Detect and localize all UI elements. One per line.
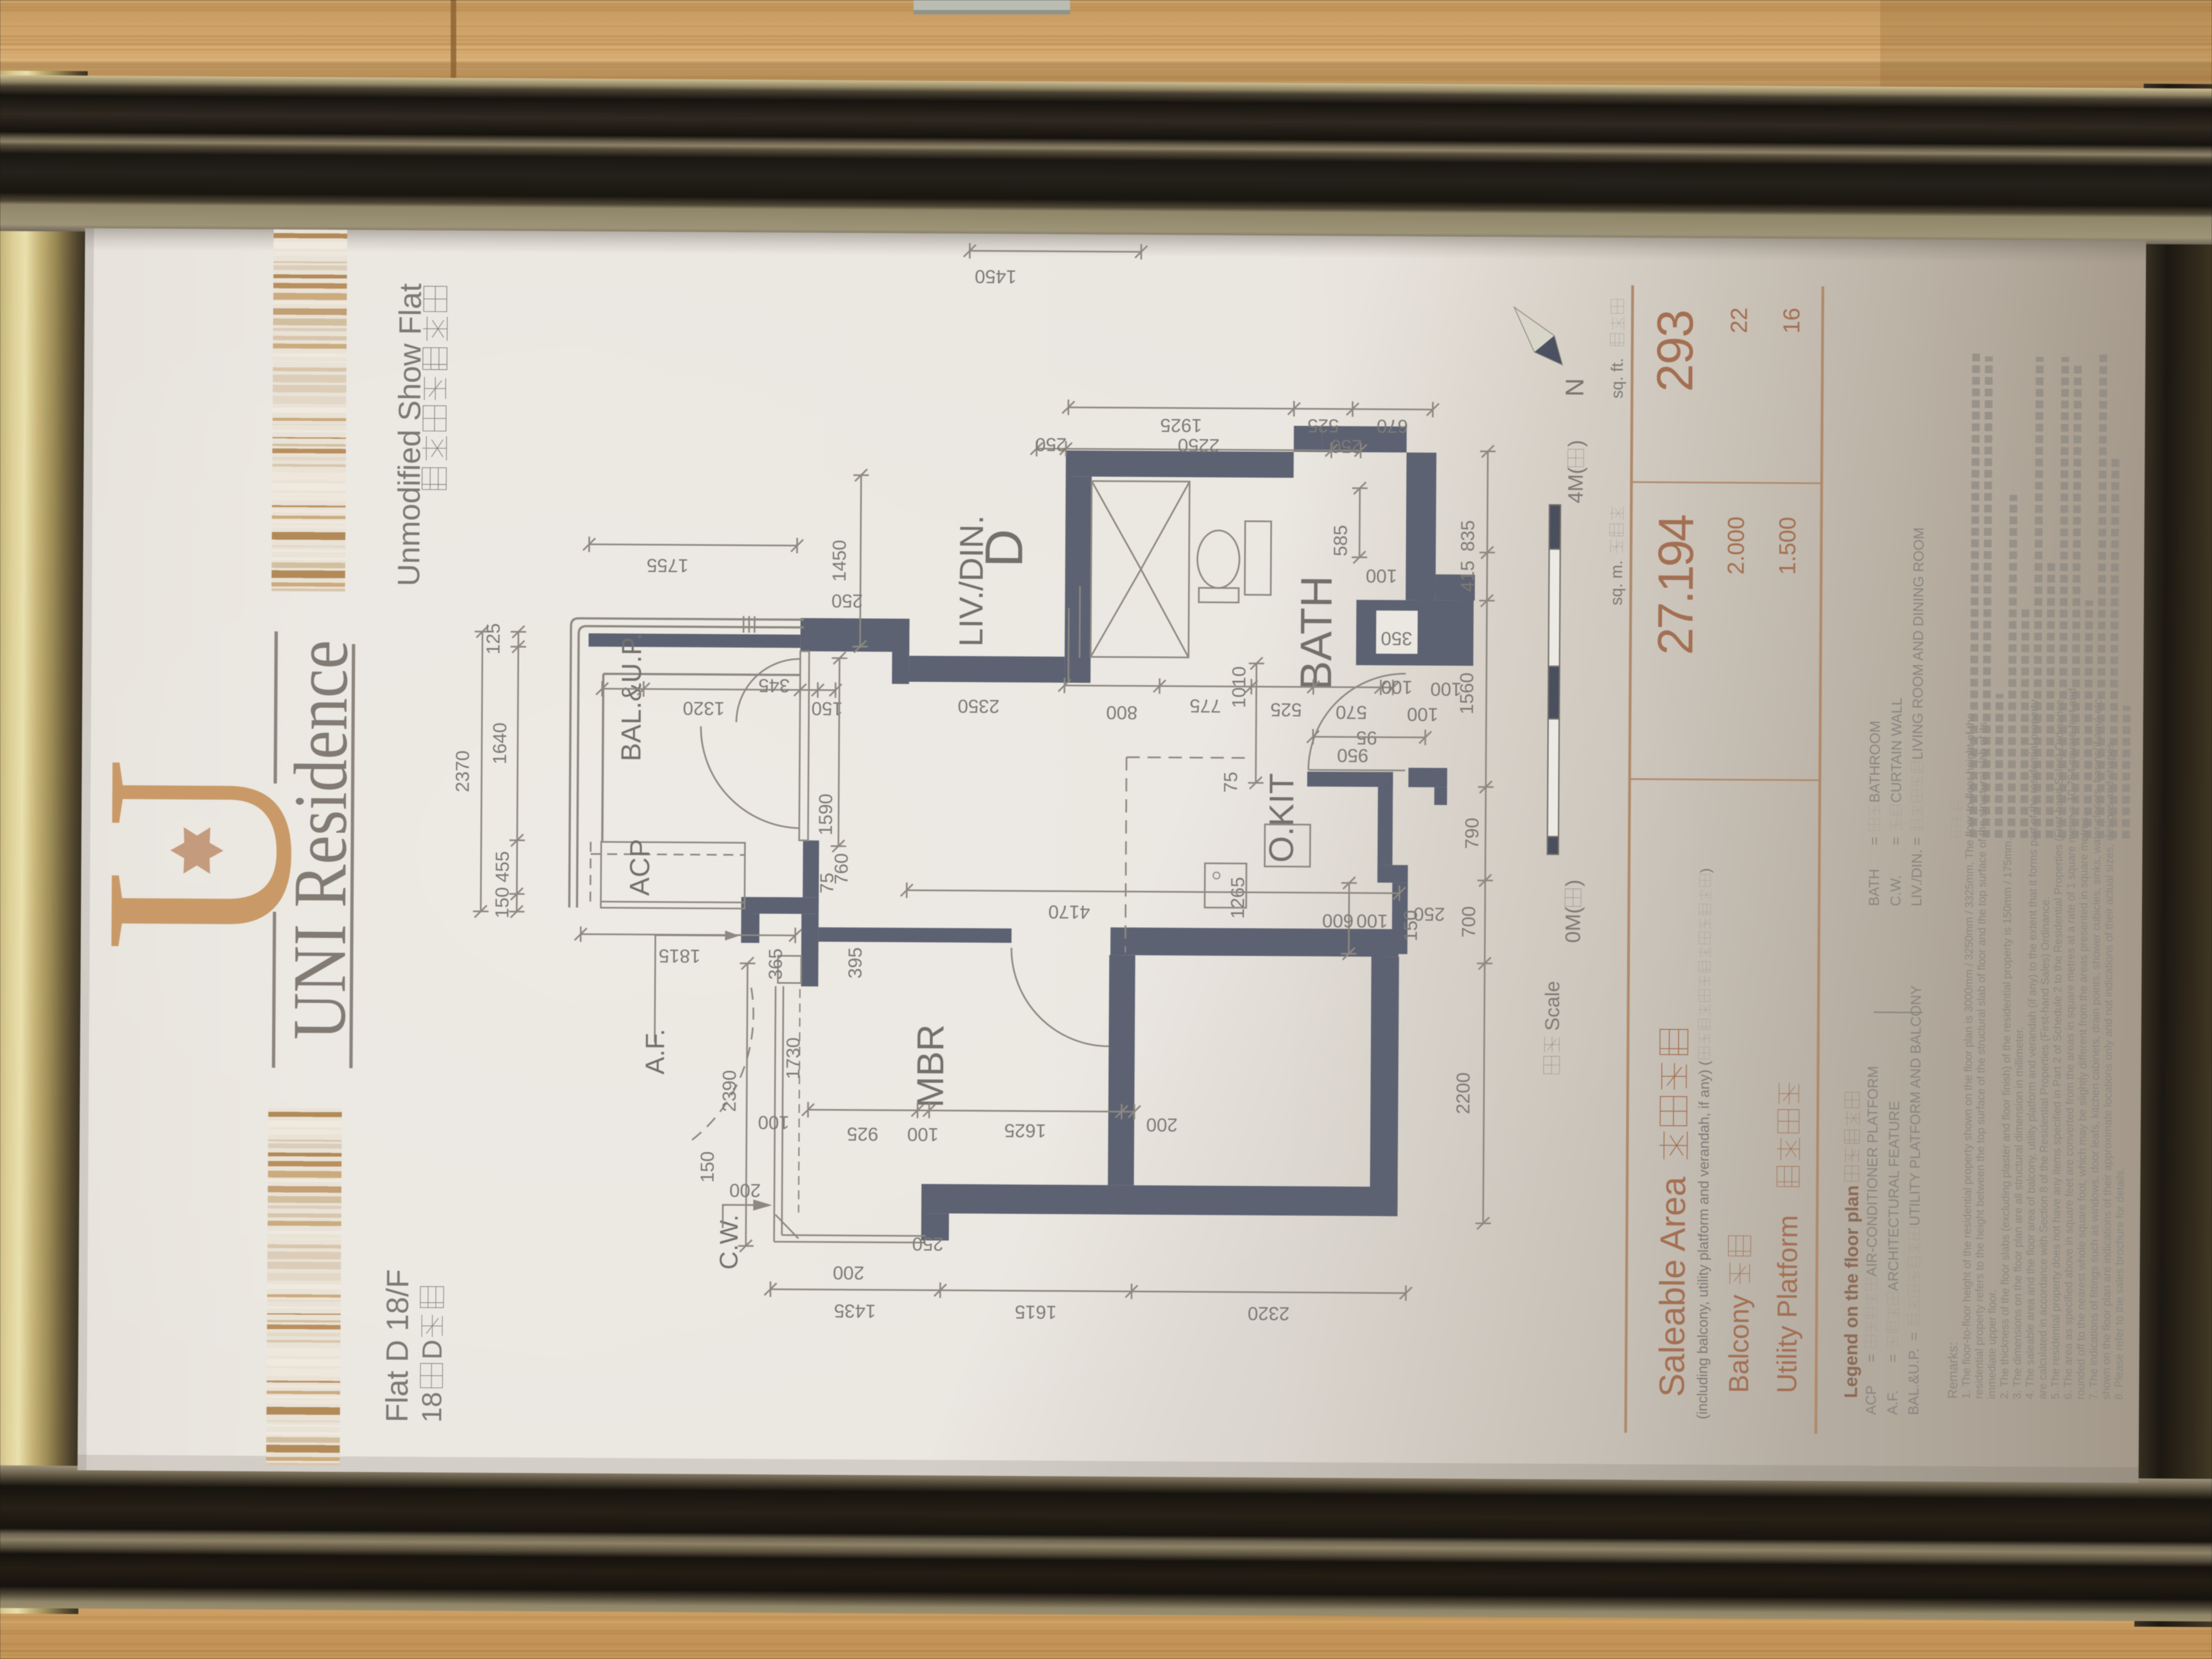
- svg-text:365: 365: [765, 948, 786, 980]
- svg-text:22: 22: [1726, 307, 1752, 333]
- svg-text:ARCHITECTURAL FEATURE: ARCHITECTURAL FEATURE: [1885, 1101, 1902, 1291]
- svg-text:1450: 1450: [829, 540, 850, 582]
- svg-text:BATHROOM: BATHROOM: [1866, 721, 1884, 802]
- svg-text:4170: 4170: [1048, 901, 1090, 922]
- svg-text:ACP: ACP: [1863, 1385, 1879, 1415]
- svg-text:1730: 1730: [783, 1037, 804, 1079]
- svg-text:=: =: [1906, 1332, 1922, 1340]
- svg-text:250: 250: [1035, 434, 1067, 455]
- svg-text:): ): [1562, 879, 1585, 886]
- svg-text:1590: 1590: [815, 794, 836, 836]
- svg-text:C.W.: C.W.: [714, 1214, 743, 1270]
- svg-text:Saleable Area: Saleable Area: [1652, 1176, 1693, 1397]
- svg-text:D: D: [416, 1339, 447, 1359]
- svg-text:Remarks:: Remarks:: [1945, 1342, 1961, 1399]
- svg-text:N: N: [1560, 378, 1589, 397]
- svg-text:1320: 1320: [683, 697, 725, 718]
- svg-text:150: 150: [811, 698, 843, 719]
- svg-text:775: 775: [1190, 695, 1221, 716]
- svg-text:250: 250: [912, 1233, 943, 1254]
- svg-text:950: 950: [1337, 745, 1369, 766]
- svg-text:700: 700: [1458, 906, 1479, 938]
- svg-text:CURTAIN WALL: CURTAIN WALL: [1888, 697, 1905, 802]
- svg-text:350: 350: [1381, 628, 1412, 649]
- svg-text:=: =: [1863, 1354, 1879, 1362]
- svg-text:293: 293: [1647, 310, 1704, 392]
- svg-text:1615: 1615: [1015, 1301, 1057, 1322]
- svg-text:BATH: BATH: [1291, 576, 1341, 691]
- svg-text:Unmodified Show Flat: Unmodified Show Flat: [391, 283, 427, 587]
- svg-text:1010: 1010: [1229, 666, 1250, 708]
- svg-text:): ): [1565, 440, 1588, 447]
- svg-text:BAL.&U.P.: BAL.&U.P.: [1905, 1348, 1922, 1415]
- svg-text:Flat D 18/F: Flat D 18/F: [379, 1269, 415, 1422]
- svg-text:AIR-CONDITIONER PLATFORM: AIR-CONDITIONER PLATFORM: [1863, 1066, 1881, 1277]
- svg-text:200: 200: [833, 1262, 864, 1283]
- svg-text:2.000: 2.000: [1723, 517, 1749, 575]
- svg-text:ACP: ACP: [624, 839, 656, 896]
- svg-text:LIV./DIN.: LIV./DIN.: [952, 515, 990, 646]
- svg-text:1.500: 1.500: [1774, 517, 1801, 575]
- svg-text:925: 925: [847, 1123, 878, 1144]
- svg-text:2390: 2390: [719, 1070, 740, 1112]
- svg-text:LIV./DIN.: LIV./DIN.: [1908, 849, 1925, 906]
- svg-text:1265: 1265: [1227, 877, 1248, 919]
- svg-text:1925: 1925: [1160, 415, 1202, 436]
- svg-text:C.W.: C.W.: [1887, 875, 1903, 906]
- svg-text:100: 100: [1381, 676, 1412, 697]
- svg-text:585: 585: [1330, 525, 1351, 556]
- svg-text:835: 835: [1457, 520, 1478, 552]
- svg-text:100: 100: [1407, 703, 1438, 724]
- svg-text:2350: 2350: [958, 695, 1000, 716]
- svg-text:800: 800: [1106, 702, 1138, 723]
- svg-text:Legend on the floor plan: Legend on the floor plan: [1840, 1185, 1862, 1398]
- svg-text:345: 345: [758, 675, 790, 696]
- svg-text:sq. ft.: sq. ft.: [1608, 358, 1626, 399]
- svg-text:670: 670: [1376, 415, 1408, 436]
- svg-text:150: 150: [1400, 910, 1421, 942]
- svg-text:3. The dimensions on the floo: 3. The dimensions on the floor plan are …: [2011, 1027, 2026, 1399]
- svg-text:395: 395: [845, 947, 866, 979]
- svg-text:O.KIT: O.KIT: [1262, 773, 1301, 863]
- svg-text:790: 790: [1462, 818, 1483, 849]
- svg-text:Scale: Scale: [1541, 981, 1564, 1031]
- svg-text:455: 455: [492, 851, 513, 883]
- svg-text:Balcony: Balcony: [1723, 1295, 1755, 1393]
- svg-text:600: 600: [1322, 910, 1354, 931]
- svg-text:A.F.: A.F.: [641, 1029, 671, 1074]
- svg-text:100: 100: [758, 1112, 790, 1133]
- svg-text:2200: 2200: [1453, 1072, 1474, 1114]
- svg-text:0M(: 0M(: [1562, 906, 1585, 943]
- svg-text:150: 150: [492, 887, 513, 919]
- svg-text:immediate upper floor.: immediate upper floor.: [1986, 1290, 1999, 1399]
- svg-text:200: 200: [729, 1180, 761, 1201]
- svg-text:=: =: [1866, 837, 1882, 845]
- svg-text:1560: 1560: [1457, 672, 1478, 714]
- svg-text:BAL.&U.P.: BAL.&U.P.: [615, 633, 647, 761]
- svg-text:125: 125: [483, 623, 504, 655]
- svg-text:760: 760: [831, 853, 852, 885]
- svg-text:250: 250: [1331, 435, 1362, 456]
- svg-text:UNI Residence: UNI Residence: [277, 640, 363, 1040]
- svg-text:=: =: [1908, 837, 1925, 846]
- svg-text:18: 18: [416, 1392, 447, 1423]
- svg-text:570: 570: [1335, 702, 1367, 723]
- svg-text:1435: 1435: [834, 1300, 876, 1321]
- svg-text:100: 100: [1357, 910, 1388, 931]
- svg-text:525: 525: [1270, 699, 1302, 720]
- svg-text:250: 250: [831, 590, 863, 611]
- svg-text:MBR: MBR: [909, 1024, 952, 1108]
- svg-text:): ): [1697, 868, 1714, 873]
- svg-text:150: 150: [697, 1151, 718, 1183]
- svg-text:75: 75: [1220, 771, 1241, 792]
- svg-text:=: =: [1884, 1354, 1901, 1362]
- svg-text:A.F.: A.F.: [1884, 1390, 1901, 1415]
- svg-text:8. Please refer to the sales: 8. Please refer to the sales brochure fo…: [2113, 1167, 2127, 1400]
- svg-text:=: =: [1887, 837, 1904, 845]
- svg-text:UTILITY PLATFORM AND BALCONY: UTILITY PLATFORM AND BALCONY: [1906, 985, 1924, 1227]
- svg-text:415: 415: [1457, 561, 1478, 592]
- svg-text:4M(: 4M(: [1564, 467, 1588, 503]
- svg-text:1755: 1755: [646, 555, 688, 576]
- svg-text:1815: 1815: [659, 945, 701, 966]
- svg-text:BATH: BATH: [1865, 869, 1882, 906]
- svg-text:16: 16: [1778, 307, 1804, 333]
- svg-text:100: 100: [1366, 565, 1397, 586]
- svg-text:(including balcony, utility pl: (including balcony, utility platform and…: [1694, 1061, 1713, 1420]
- svg-text:100: 100: [907, 1124, 938, 1145]
- svg-text:2320: 2320: [1248, 1303, 1290, 1324]
- svg-text:1640: 1640: [489, 722, 510, 764]
- svg-text:sq. m.: sq. m.: [1608, 560, 1626, 606]
- svg-text:Utility Platform: Utility Platform: [1771, 1215, 1803, 1394]
- svg-text:LIVING ROOM AND DINING ROOM: LIVING ROOM AND DINING ROOM: [1909, 527, 1927, 760]
- svg-text:525: 525: [1307, 415, 1339, 436]
- svg-text:2370: 2370: [452, 750, 473, 792]
- svg-text:200: 200: [1146, 1114, 1178, 1135]
- svg-text:27.194: 27.194: [1648, 515, 1704, 655]
- svg-text:1450: 1450: [974, 266, 1016, 287]
- svg-text:2250: 2250: [1178, 435, 1220, 456]
- svg-text:1625: 1625: [1004, 1120, 1046, 1141]
